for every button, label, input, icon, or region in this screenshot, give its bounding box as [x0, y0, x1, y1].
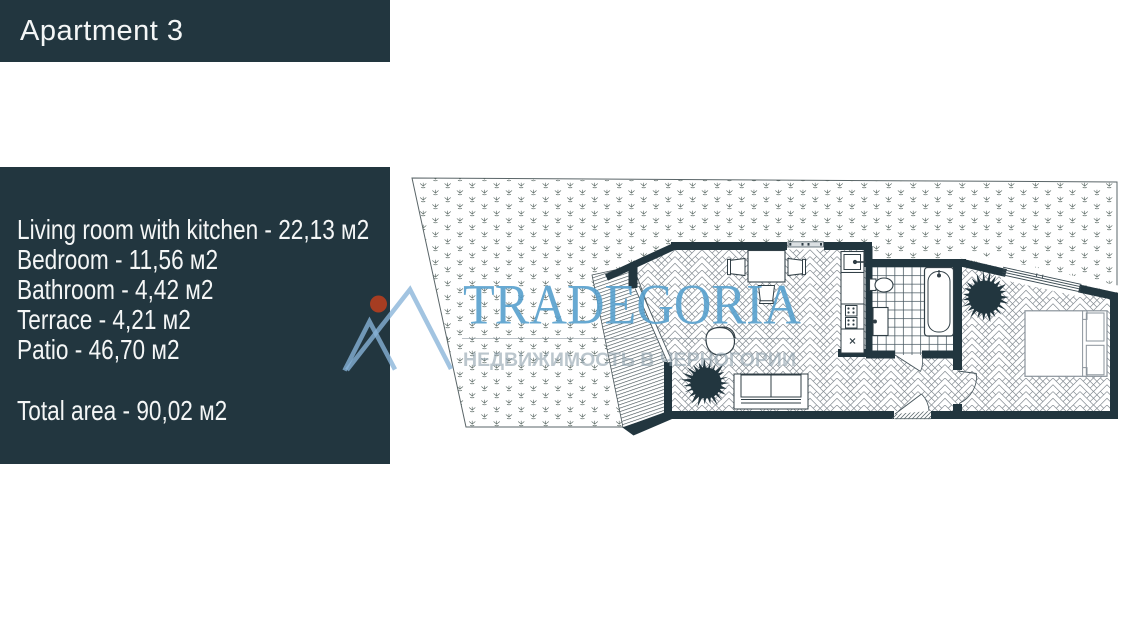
- svg-text:НЕДВИЖИМОСТЬ В ЧЕРНОГОРИИ: НЕДВИЖИМОСТЬ В ЧЕРНОГОРИИ: [463, 349, 796, 371]
- svg-text:TRADEGORIA: TRADEGORIA: [463, 274, 801, 337]
